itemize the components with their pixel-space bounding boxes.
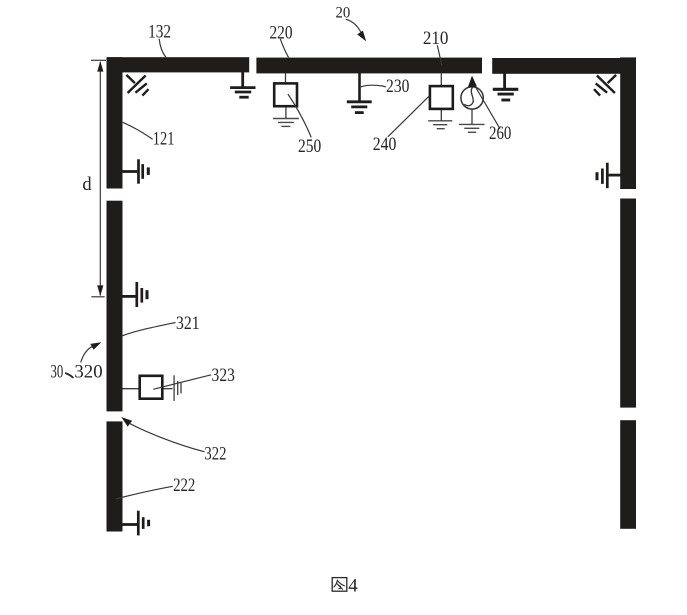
svg-text:4: 4: [348, 575, 358, 596]
svg-text:210: 210: [423, 29, 449, 49]
svg-text:220: 220: [270, 24, 293, 44]
svg-text:260: 260: [489, 124, 511, 144]
svg-text:230: 230: [386, 77, 409, 97]
svg-text:d: d: [82, 175, 92, 195]
svg-text:222: 222: [173, 476, 195, 496]
svg-text:322: 322: [204, 445, 226, 465]
svg-text:323: 323: [212, 366, 235, 386]
svg-text:320: 320: [74, 363, 102, 383]
svg-text:240: 240: [373, 135, 397, 155]
svg-text:20: 20: [336, 5, 351, 22]
svg-text:121: 121: [153, 129, 175, 149]
svg-text:30: 30: [51, 363, 64, 383]
svg-text:321: 321: [176, 314, 200, 334]
svg-text:132: 132: [148, 22, 171, 42]
svg-text:250: 250: [298, 137, 321, 157]
